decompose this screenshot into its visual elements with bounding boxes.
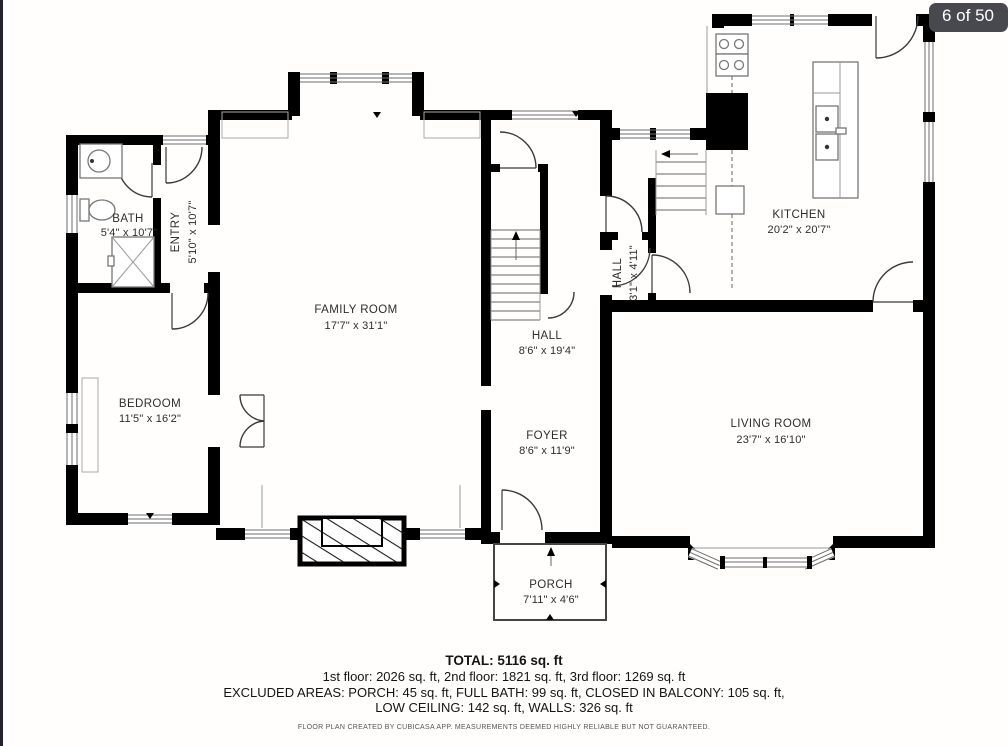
room-name: FAMILY ROOM: [314, 304, 397, 316]
room-dims: 7'11" x 4'6": [523, 594, 579, 606]
room-label-kitchen: KITCHEN 20'2" x 20'7": [768, 209, 831, 236]
room-dims: 8'6" x 19'4": [519, 345, 576, 357]
area-summary: TOTAL: 5116 sq. ft 1st floor: 2026 sq. f…: [0, 653, 1008, 731]
room-label-porch: PORCH 7'11" x 4'6": [523, 579, 579, 606]
room-dims: 3'1" x 4'11": [628, 245, 640, 301]
room-label-hall-small: HALL 3'1" x 4'11": [612, 245, 640, 301]
page-counter-badge: 6 of 50: [929, 3, 1008, 32]
shower: [108, 237, 154, 287]
excluded-areas-text: EXCLUDED AREAS: PORCH: 45 sq. ft, FULL B…: [0, 685, 1008, 701]
windows-layer: [66, 14, 935, 540]
excluded-areas-text-2: LOW CEILING: 142 sq. ft, WALLS: 326 sq. …: [0, 700, 1008, 716]
room-name: BATH: [112, 213, 143, 225]
room-name: LIVING ROOM: [730, 418, 811, 430]
room-labels: BATH 5'4" x 10'7" ENTRY 5'10" x 10'7" FA…: [101, 201, 831, 606]
room-name: HALL: [532, 330, 563, 342]
room-name: BEDROOM: [119, 398, 181, 410]
room-label-family-room: FAMILY ROOM 17'7" x 31'1": [314, 304, 397, 332]
total-area-text: TOTAL: 5116 sq. ft: [0, 653, 1008, 669]
walls-layer: [66, 14, 935, 548]
kitchen-island: [813, 62, 858, 198]
room-label-living-room: LIVING ROOM 23'7" x 16'10": [730, 418, 811, 446]
room-name: FOYER: [526, 430, 568, 442]
bedroom-wardrobe: [82, 378, 98, 472]
room-dims: 5'10" x 10'7": [187, 201, 199, 264]
disclaimer-text: FLOOR PLAN CREATED BY CUBICASA APP. MEAS…: [0, 724, 1008, 731]
cooktop: [707, 26, 748, 288]
room-name: ENTRY: [170, 212, 182, 253]
floor-areas-text: 1st floor: 2026 sq. ft, 2nd floor: 1821 …: [0, 669, 1008, 685]
room-dims: 11'5" x 16'2": [119, 413, 181, 425]
room-name: HALL: [612, 258, 624, 289]
bath-sink: [80, 144, 122, 178]
room-label-hall: HALL 8'6" x 19'4": [519, 330, 576, 357]
bay-window: [688, 542, 835, 570]
room-dims: 5'4" x 10'7": [101, 227, 158, 239]
main-staircase: [491, 230, 540, 320]
room-name: PORCH: [529, 579, 573, 591]
room-name: KITCHEN: [772, 209, 825, 221]
room-dims: 23'7" x 16'10": [736, 434, 805, 446]
toilet: [80, 199, 115, 221]
room-dims: 8'6" x 11'9": [519, 445, 575, 457]
room-dims: 17'7" x 31'1": [325, 320, 388, 332]
room-label-bedroom: BEDROOM 11'5" x 16'2": [119, 398, 181, 425]
floorplan-image[interactable]: BATH 5'4" x 10'7" ENTRY 5'10" x 10'7" FA…: [0, 0, 1008, 746]
room-label-foyer: FOYER 8'6" x 11'9": [519, 430, 575, 457]
doors-layer: [118, 16, 918, 530]
back-staircase: [656, 150, 706, 215]
floorplan-viewer: BATH 5'4" x 10'7" ENTRY 5'10" x 10'7" FA…: [0, 0, 1008, 746]
fireplace: [300, 518, 404, 564]
room-label-entry: ENTRY 5'10" x 10'7": [170, 201, 199, 264]
room-dims: 20'2" x 20'7": [768, 224, 831, 236]
